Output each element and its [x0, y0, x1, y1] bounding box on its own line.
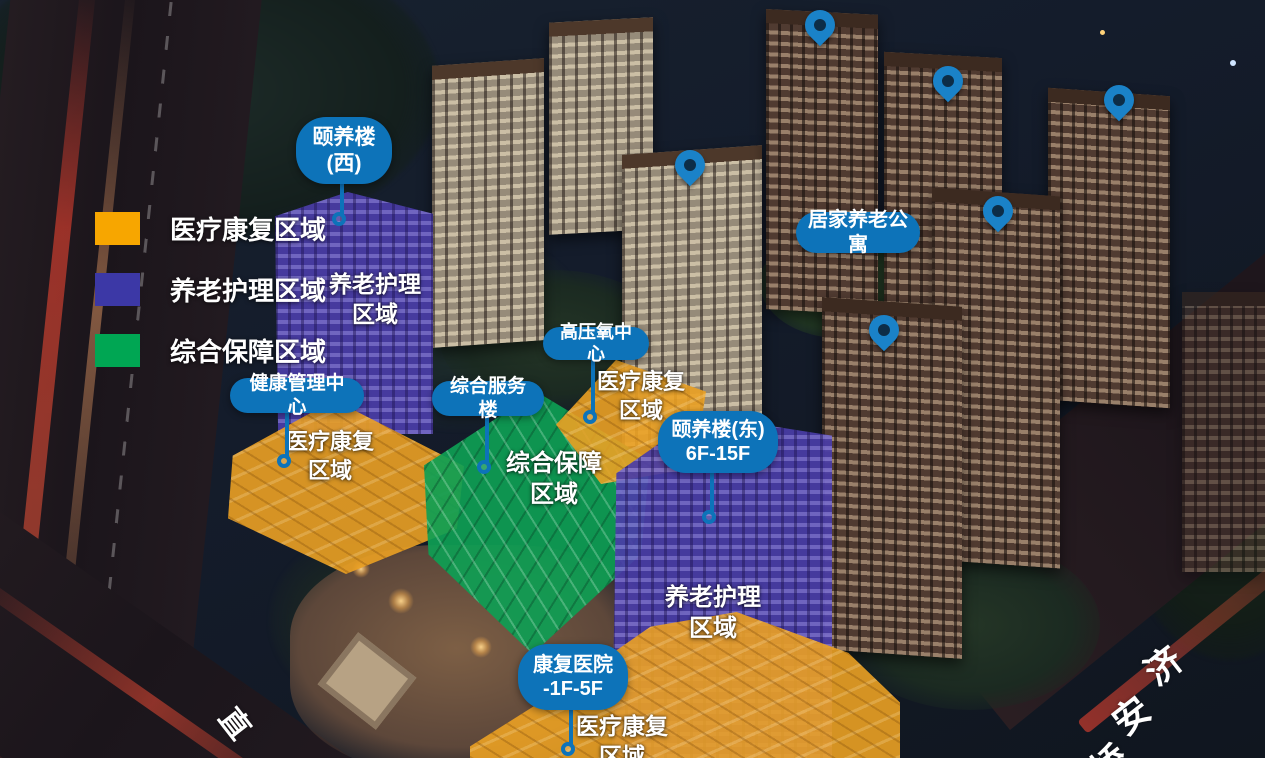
plaza-light: [388, 588, 414, 614]
callout-anchor: [277, 454, 291, 468]
callout-anchor: [702, 510, 716, 524]
area-label-support: 综合保障 区域: [472, 448, 636, 510]
plaza-light: [470, 636, 492, 658]
callout-rehab-hospital: 康复医院 -1F-5F: [518, 644, 628, 710]
residential-tower: [432, 58, 544, 348]
residential-tower: [1182, 292, 1265, 572]
area-label-care-east: 养老护理 区域: [631, 582, 795, 644]
area-label-care-west: 养老护理 区域: [302, 270, 448, 330]
callout-anchor: [477, 460, 491, 474]
callout-service-building: 综合服务楼: [432, 381, 544, 416]
callout-stem: [340, 182, 344, 214]
callout-stem: [710, 472, 714, 512]
callout-stem: [591, 358, 595, 412]
legend-label: 医疗康复区域: [170, 210, 326, 247]
legend-swatch-orange: [95, 212, 140, 245]
callout-yiyanglou-east: 颐养楼(东) 6F-15F: [658, 411, 778, 473]
legend: 医疗康复区域 养老护理区域 综合保障区域: [95, 210, 326, 393]
city-light: [1100, 30, 1105, 35]
callout-anchor: [583, 410, 597, 424]
callout-yiyanglou-west: 颐养楼 (西): [296, 117, 392, 184]
legend-swatch-green: [95, 334, 140, 367]
callout-home-apartment: 居家养老公寓: [796, 212, 920, 253]
legend-label: 综合保障区域: [170, 332, 326, 369]
legend-item-care: 养老护理区域: [95, 271, 326, 308]
city-light: [1230, 60, 1236, 66]
callout-health-mgmt: 健康管理中心: [230, 378, 364, 413]
aerial-site-map: 直 济 安 桥 医疗康复区域 养老护理区域: [0, 0, 1265, 758]
callout-stem: [569, 708, 573, 744]
residential-tower: [766, 9, 878, 315]
legend-item-medical: 医疗康复区域: [95, 210, 326, 247]
legend-item-support: 综合保障区域: [95, 332, 326, 369]
callout-hyperbaric: 高压氧中心: [543, 327, 649, 360]
callout-anchor: [561, 742, 575, 756]
callout-anchor: [332, 212, 346, 226]
legend-swatch-indigo: [95, 273, 140, 306]
residential-tower: [822, 297, 962, 659]
residential-tower: [1048, 88, 1170, 409]
